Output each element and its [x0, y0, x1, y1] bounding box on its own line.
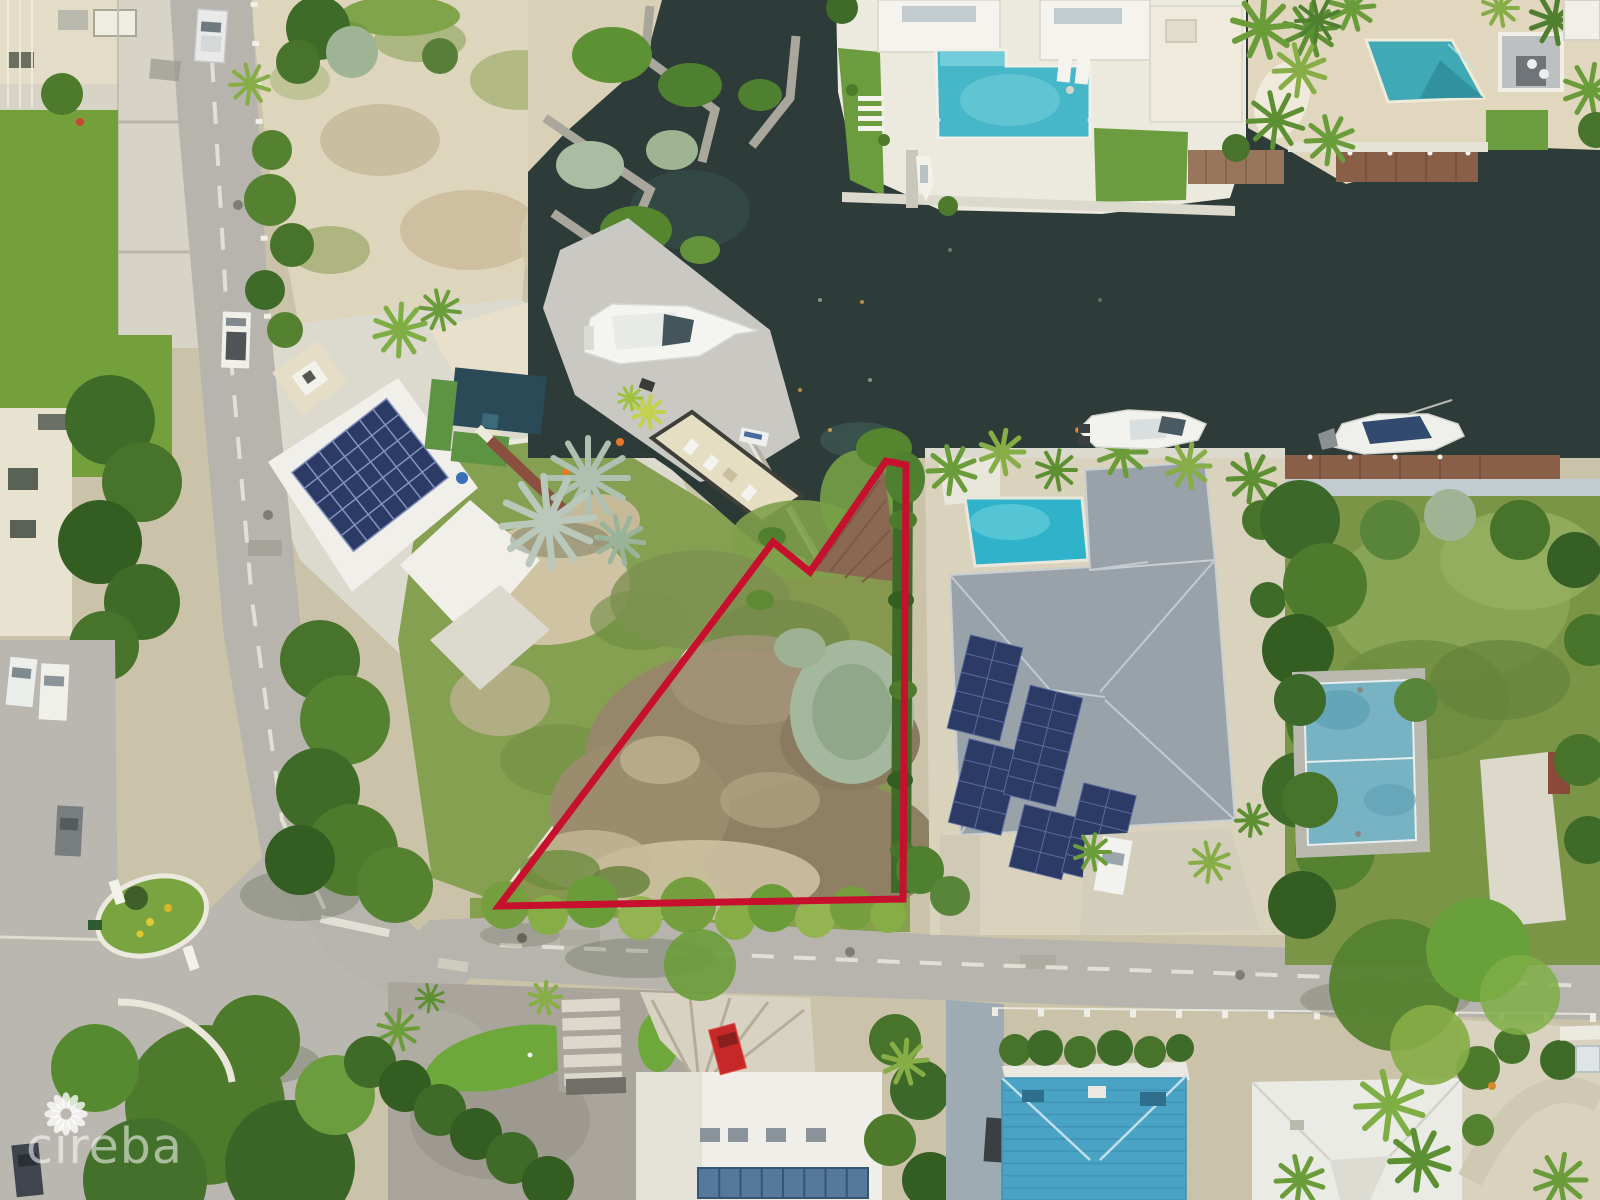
watermark-text: cireba: [26, 1122, 183, 1171]
aerial-photo-stage: cireba: [0, 0, 1600, 1200]
top-center-house: [826, 0, 1284, 216]
right-neighbor-parcel: [1260, 455, 1600, 966]
aerial-photo: [0, 0, 1600, 1200]
right-house-parcel: [896, 427, 1286, 935]
watermark: cireba: [26, 1080, 486, 1200]
